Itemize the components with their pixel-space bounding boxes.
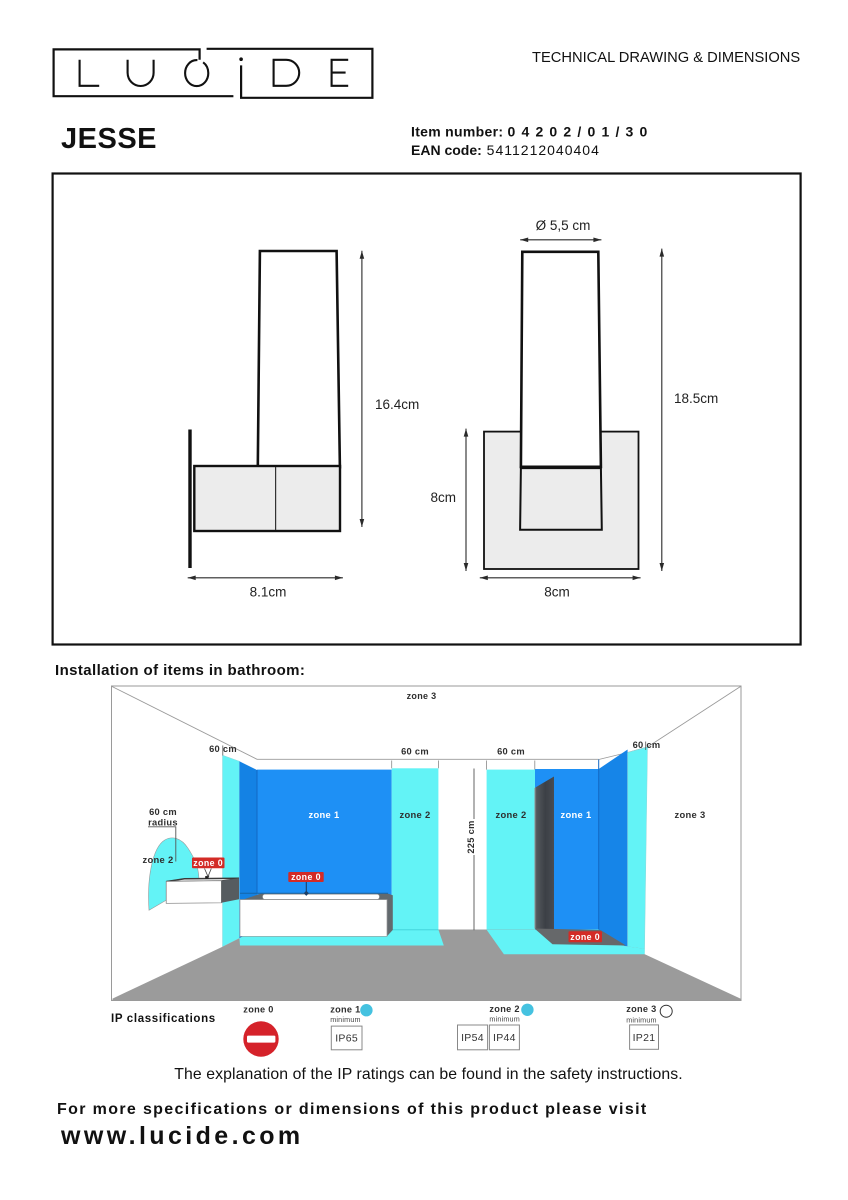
svg-text:IP65: IP65 [335, 1033, 358, 1045]
svg-text:zone 1: zone 1 [330, 1005, 360, 1015]
svg-text:zone 1: zone 1 [309, 809, 340, 820]
svg-text:zone 0: zone 0 [243, 1005, 273, 1015]
svg-text:IP54: IP54 [461, 1032, 484, 1044]
svg-text:zone 2: zone 2 [496, 809, 527, 820]
svg-text:Item number: 04202/01/30: Item number: 04202/01/30 [411, 124, 654, 140]
svg-text:8cm: 8cm [430, 490, 456, 505]
svg-text:The explanation of the IP rati: The explanation of the IP ratings can be… [174, 1066, 683, 1083]
svg-text:www.lucide.com: www.lucide.com [60, 1122, 304, 1150]
svg-text:For more specifications or dim: For more specifications or dimensions of… [57, 1101, 648, 1118]
svg-text:IP classifications: IP classifications [111, 1013, 216, 1025]
svg-text:zone 2: zone 2 [400, 809, 431, 820]
svg-text:Ø 5,5 cm: Ø 5,5 cm [536, 218, 591, 233]
svg-text:JESSE: JESSE [61, 123, 157, 155]
svg-text:8cm: 8cm [544, 585, 570, 600]
svg-text:zone 3: zone 3 [626, 1004, 656, 1014]
svg-text:radius: radius [148, 818, 178, 828]
svg-text:18.5cm: 18.5cm [674, 391, 718, 406]
svg-text:zone 0: zone 0 [193, 858, 223, 868]
svg-text:zone 2: zone 2 [143, 854, 174, 865]
svg-text:60 cm: 60 cm [633, 740, 661, 750]
svg-text:8.1cm: 8.1cm [250, 585, 287, 600]
svg-text:minimum: minimum [626, 1016, 657, 1025]
svg-text:Installation of items in bathr: Installation of items in bathroom: [55, 662, 305, 679]
svg-text:60 cm: 60 cm [149, 807, 177, 817]
svg-text:zone 3: zone 3 [407, 691, 437, 701]
svg-text:60 cm: 60 cm [401, 747, 429, 757]
svg-text:minimum: minimum [489, 1015, 520, 1024]
svg-text:EAN code: 5411212040404: EAN code: 5411212040404 [411, 142, 600, 158]
svg-text:IP21: IP21 [633, 1032, 656, 1044]
svg-text:TECHNICAL DRAWING & DIMENSIONS: TECHNICAL DRAWING & DIMENSIONS [532, 50, 800, 66]
svg-text:zone 1: zone 1 [561, 809, 592, 820]
svg-text:zone 0: zone 0 [291, 872, 321, 882]
svg-text:225 cm: 225 cm [466, 820, 476, 853]
svg-text:zone 3: zone 3 [675, 809, 706, 820]
svg-text:60 cm: 60 cm [497, 747, 525, 757]
svg-text:zone 0: zone 0 [570, 932, 600, 942]
svg-text:16.4cm: 16.4cm [375, 397, 419, 412]
svg-text:minimum: minimum [330, 1015, 361, 1024]
svg-text:zone 2: zone 2 [489, 1004, 519, 1014]
svg-text:IP44: IP44 [493, 1032, 516, 1044]
